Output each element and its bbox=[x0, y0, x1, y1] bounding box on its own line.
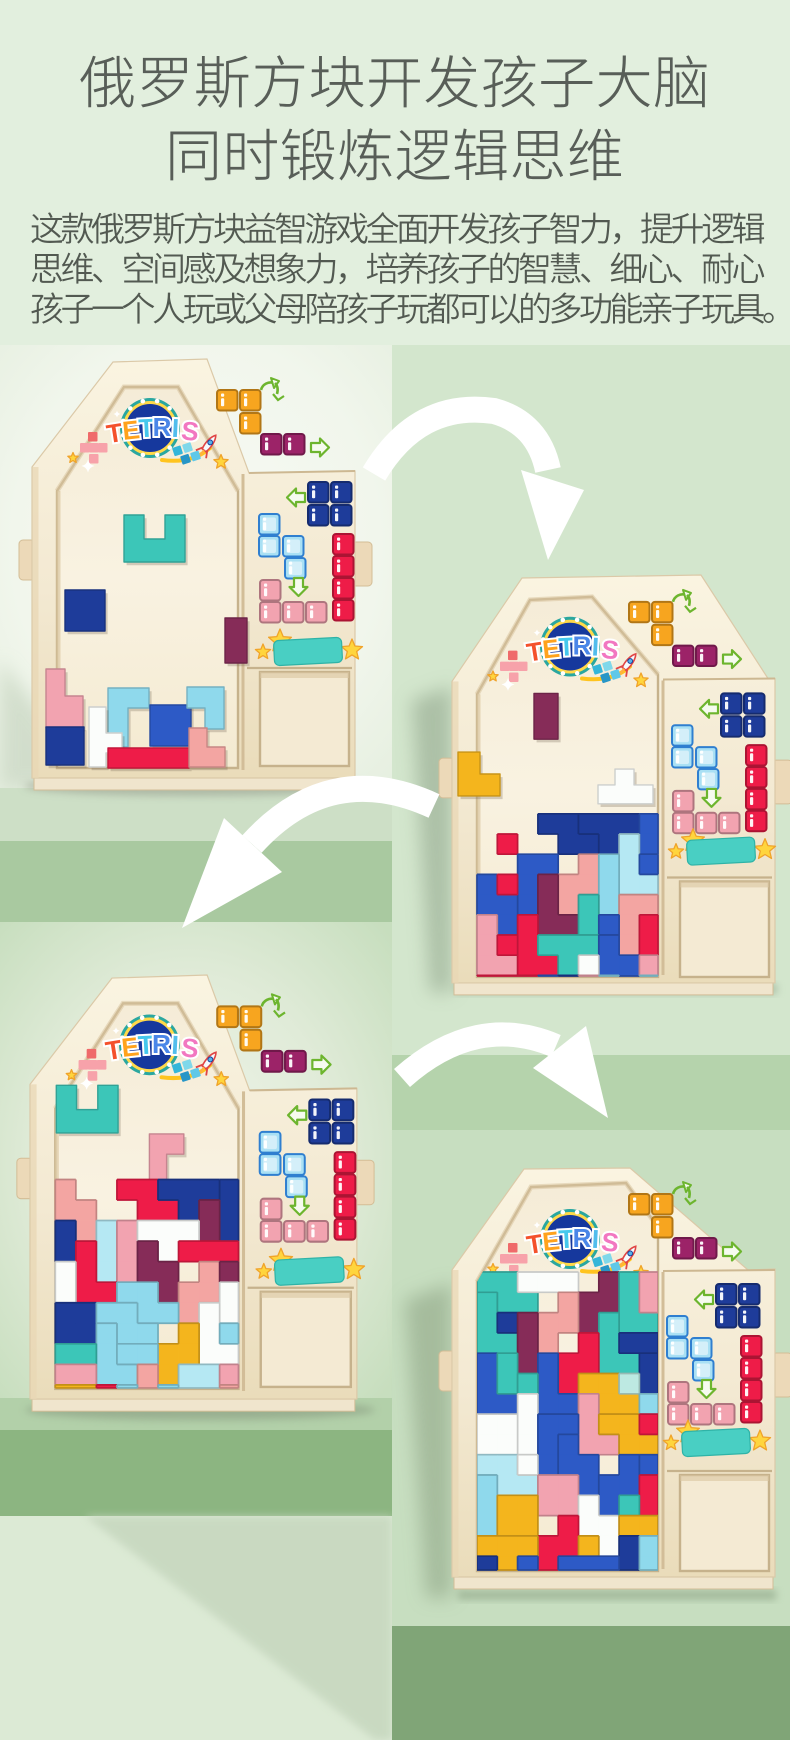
svg-text:I: I bbox=[171, 1030, 180, 1060]
svg-text:R: R bbox=[573, 1223, 592, 1253]
svg-text:S: S bbox=[179, 1032, 200, 1064]
svg-text:S: S bbox=[180, 415, 201, 447]
svg-text:R: R bbox=[152, 1029, 171, 1059]
svg-text:I: I bbox=[591, 633, 600, 661]
svg-text:R: R bbox=[573, 633, 592, 661]
svg-text:S: S bbox=[600, 1226, 621, 1258]
svg-text:R: R bbox=[153, 412, 172, 442]
